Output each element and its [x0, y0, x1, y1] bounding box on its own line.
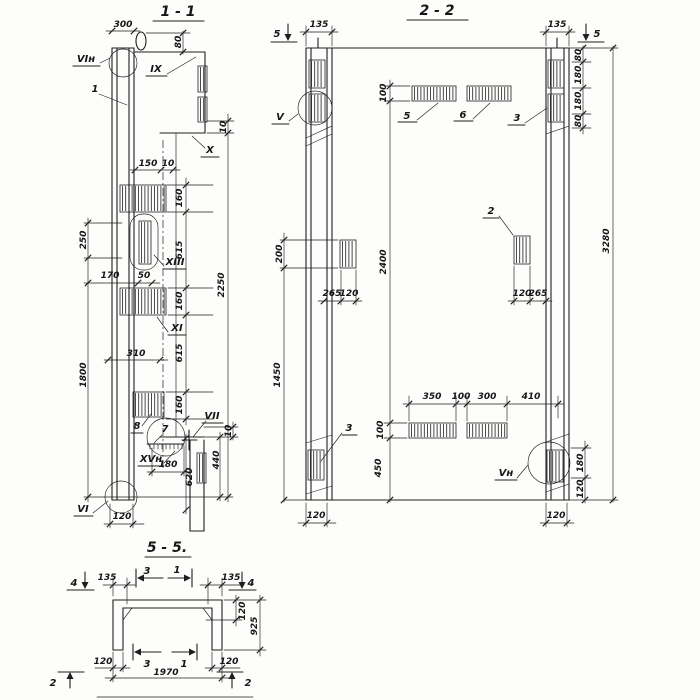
channel-profile — [113, 600, 222, 650]
embedded-plate — [120, 288, 166, 315]
dim-265-left: 265 — [323, 289, 342, 299]
edge-plate — [197, 453, 206, 483]
dim-80b: 80 — [574, 115, 584, 128]
dim-160b: 160 — [175, 292, 185, 311]
panel-rib-outline — [112, 32, 146, 500]
embedded-plate — [120, 185, 166, 212]
rib-plate — [308, 450, 324, 480]
dim-925: 925 — [250, 617, 260, 636]
mark-pos-2: 2 — [488, 206, 495, 217]
dim-120-leg-right: 120 — [220, 657, 239, 667]
mark-pos-8: 8 — [134, 421, 141, 432]
dim-135-right: 135 — [222, 573, 241, 583]
dim-50: 50 — [138, 271, 151, 281]
dim-250: 250 — [79, 231, 89, 250]
embedded-plate-5 — [412, 86, 456, 101]
dim-200: 200 — [275, 245, 285, 264]
rib-plate — [309, 94, 325, 122]
cut-1-bottom: 1 — [181, 659, 188, 670]
extension-lines — [113, 578, 266, 682]
dim-440: 440 — [212, 451, 222, 471]
dim-100-row: 100 — [452, 392, 471, 402]
dim-450: 450 — [374, 459, 384, 479]
embedded-plate-6 — [467, 86, 511, 101]
dim-100-top: 100 — [379, 84, 389, 103]
dim-180a: 180 — [574, 66, 584, 85]
dim-135-right: 135 — [548, 20, 567, 30]
dim-10-mid: 10 — [162, 159, 175, 169]
rib-plate — [548, 60, 564, 88]
dim-10-bottom: 10 — [224, 425, 234, 438]
dim-160a: 160 — [175, 189, 185, 208]
mark-xiii: XIII — [165, 257, 185, 268]
embedded-plate — [340, 240, 356, 268]
section-5-5-title: 5 - 5. — [147, 540, 187, 556]
mark-ix: IX — [150, 64, 163, 75]
dim-300: 300 — [478, 392, 497, 402]
dim-620: 620 — [185, 468, 195, 487]
mark-vii: VII — [204, 411, 219, 422]
dim-120: 120 — [113, 512, 132, 522]
mark-pos-6: 6 — [460, 110, 467, 121]
dim-135-left: 135 — [98, 573, 117, 583]
cut-4-left: 4 — [70, 578, 78, 589]
dim-100-bottom: 100 — [376, 421, 386, 440]
mark-v: V — [276, 112, 285, 123]
mark-xi: XI — [170, 323, 183, 334]
cut-2-left: 2 — [50, 678, 57, 689]
dim-350: 350 — [423, 392, 442, 402]
dim-300: 300 — [114, 20, 133, 30]
panel-drawing-svg: 1 - 1 — [0, 0, 700, 700]
embedded-plate — [409, 423, 456, 438]
cut-1-top: 1 — [174, 565, 181, 576]
dim-1800: 1800 — [79, 362, 89, 387]
dim-2250: 2250 — [217, 272, 227, 297]
section-5-5: 5 - 5. — [50, 540, 266, 689]
mark-pos-5: 5 — [404, 111, 411, 122]
section-2-2-title: 2 - 2 — [419, 3, 454, 19]
embedded-plate-2 — [514, 236, 530, 264]
dim-310: 310 — [127, 349, 146, 359]
rib-plate — [309, 60, 325, 88]
cut-3-top: 3 — [144, 566, 151, 577]
dim-265-right: 265 — [529, 289, 548, 299]
dim-10-top: 10 — [219, 121, 229, 134]
embedded-plate — [467, 423, 507, 438]
edge-plate — [198, 66, 207, 92]
dim-150: 150 — [139, 159, 158, 169]
mark-pos-3-bottom: 3 — [346, 423, 353, 434]
dim-120-leg-left: 120 — [94, 657, 113, 667]
cut-4-right: 4 — [247, 578, 255, 589]
cut-3-bottom: 3 — [144, 659, 151, 670]
mark-x: X — [205, 145, 215, 156]
mark-vi-bottom: VI — [77, 504, 89, 515]
dim-135-left: 135 — [310, 20, 329, 30]
dim-120-col-left: 120 — [307, 511, 326, 521]
dim-180-br: 180 — [576, 454, 586, 473]
dim-80a: 80 — [574, 49, 584, 62]
embedded-plate — [133, 392, 164, 417]
mark-pos-3-top: 3 — [514, 113, 521, 124]
dim-120-left: 120 — [340, 289, 359, 299]
dim-120-br: 120 — [576, 480, 586, 499]
section-1-1: 1 - 1 — [73, 4, 238, 531]
detail-circle-vi-top — [109, 49, 137, 77]
mark-vi-top: VIн — [77, 54, 95, 65]
cut-5-right: 5 — [594, 29, 601, 40]
cut-5-left: 5 — [274, 29, 281, 40]
mark-pos-7: 7 — [162, 424, 169, 435]
dim-170: 170 — [101, 271, 120, 281]
dim-410: 410 — [521, 392, 541, 402]
dim-160c: 160 — [175, 396, 185, 415]
mark-pos-1: 1 — [92, 84, 99, 95]
mark-vn: Vн — [499, 468, 514, 479]
drawing-sheet: 1 - 1 — [0, 0, 700, 700]
dim-615b: 615 — [175, 344, 185, 363]
rib-plate — [547, 450, 563, 482]
dim-1450: 1450 — [273, 362, 283, 387]
rib-plate — [548, 94, 564, 122]
section-2-2: 2 - 2 — [271, 3, 618, 527]
dim-2400: 2400 — [379, 249, 389, 274]
cut-2-right: 2 — [245, 678, 252, 689]
dim-180b: 180 — [574, 92, 584, 111]
mark-xvn: XVн — [139, 454, 162, 465]
dim-1970: 1970 — [153, 668, 178, 678]
dim-3280: 3280 — [602, 228, 612, 253]
dim-80: 80 — [174, 36, 184, 49]
anchor-plate — [139, 221, 151, 264]
mark-labels: VIн 1 IX X XIII XI 8 7 VII XVн — [73, 54, 223, 516]
edge-plate — [198, 97, 207, 122]
lifting-loop — [136, 32, 146, 50]
dim-120-col-right: 120 — [547, 511, 566, 521]
dim-120-flange: 120 — [238, 602, 248, 621]
section-1-1-title: 1 - 1 — [160, 4, 195, 20]
